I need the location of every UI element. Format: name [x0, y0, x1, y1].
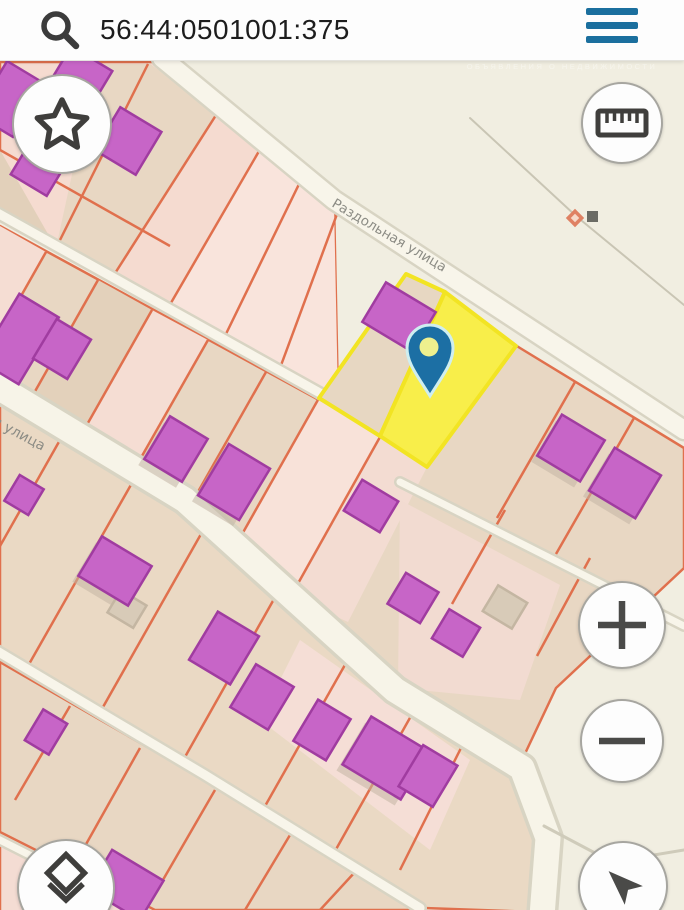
- search-bar: [0, 0, 684, 61]
- hamburger-icon: [586, 36, 638, 43]
- ruler-icon: [591, 92, 653, 154]
- measure-button[interactable]: [581, 82, 663, 164]
- cadastral-map[interactable]: Раздольная улица ая улица: [0, 60, 684, 910]
- layers-icon: [30, 849, 102, 910]
- star-icon: [29, 91, 95, 157]
- onrealt-map-app: Раздольная улица ая улица ONREALT ОБЪЯВЛ…: [0, 0, 684, 910]
- search-icon[interactable]: [36, 6, 84, 54]
- menu-button[interactable]: [586, 4, 640, 50]
- gray-square-marker: [587, 211, 598, 222]
- plus-icon: [592, 595, 652, 655]
- minus-icon: [592, 711, 652, 771]
- layers-button[interactable]: [17, 839, 115, 910]
- hamburger-icon: [586, 8, 638, 15]
- zoom-out-button[interactable]: [580, 699, 664, 783]
- zoom-in-button[interactable]: [578, 581, 666, 669]
- hamburger-icon: [586, 22, 638, 29]
- cadastral-number-input[interactable]: [98, 0, 522, 60]
- navigation-arrow-icon: [591, 853, 655, 910]
- favorites-button[interactable]: [12, 74, 112, 174]
